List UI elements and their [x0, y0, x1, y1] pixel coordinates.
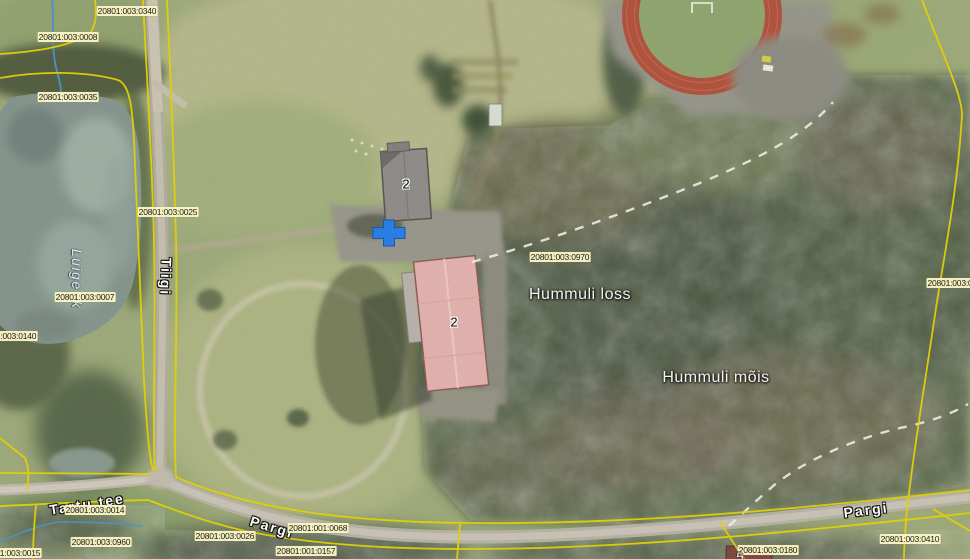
cadastral-label-20801-003-0035: 20801:003:0035: [38, 92, 99, 102]
road-name-pargi: Pargi: [248, 513, 296, 541]
water-name-luige-jk: Luige jk: [69, 249, 85, 309]
map-viewport[interactable]: Luige jkHummuli lossHummuli mõisTiigiTar…: [0, 0, 970, 559]
cadastral-label-20801-003-0140: 20801:003:0140: [0, 331, 37, 341]
cadastral-label-20801-003-0008: 20801:003:0008: [38, 32, 99, 42]
building-number-2: 2: [450, 315, 457, 330]
cadastral-label-20801-001-0157: 20801:001:0157: [276, 546, 337, 556]
cadastral-label-20801-001-0068: 20801:001:0068: [288, 523, 349, 533]
road-name-tiigi: Tiigi: [157, 257, 174, 296]
cadastral-label-20801-003-0970: 20801:003:0970: [530, 252, 591, 262]
place-name-hummuli-mõis: Hummuli mõis: [662, 369, 769, 387]
cadastral-label-20801-003-0007: 20801:003:0007: [55, 292, 116, 302]
cadastral-label-20801-003-0014: 20801:003:0014: [65, 505, 126, 515]
building-number-5: 5: [736, 550, 743, 559]
cadastral-label-20801-003-0026: 20801:003:0026: [195, 531, 256, 541]
cadastral-label-20801-003-0: 20801:003:0: [926, 278, 970, 288]
map-labels-layer: Luige jkHummuli lossHummuli mõisTiigiTar…: [0, 0, 970, 559]
place-name-hummuli-loss: Hummuli loss: [529, 286, 631, 304]
cadastral-label-20801-003-0015: 20801:003:0015: [0, 548, 41, 558]
cadastral-label-20801-003-0340: 20801:003:0340: [97, 6, 158, 16]
cadastral-label-20801-003-0960: 20801:003:0960: [71, 537, 132, 547]
cadastral-label-20801-003-0410: 20801:003:0410: [880, 534, 941, 544]
road-name-pargi: Pargi: [843, 499, 890, 520]
building-number-2: 2: [402, 177, 409, 192]
cadastral-label-20801-003-0025: 20801:003:0025: [138, 207, 199, 217]
cadastral-label-20801-003-0180: 20801:003:0180: [738, 545, 799, 555]
road-name-tartu-tee: Tartu tee: [48, 490, 126, 518]
